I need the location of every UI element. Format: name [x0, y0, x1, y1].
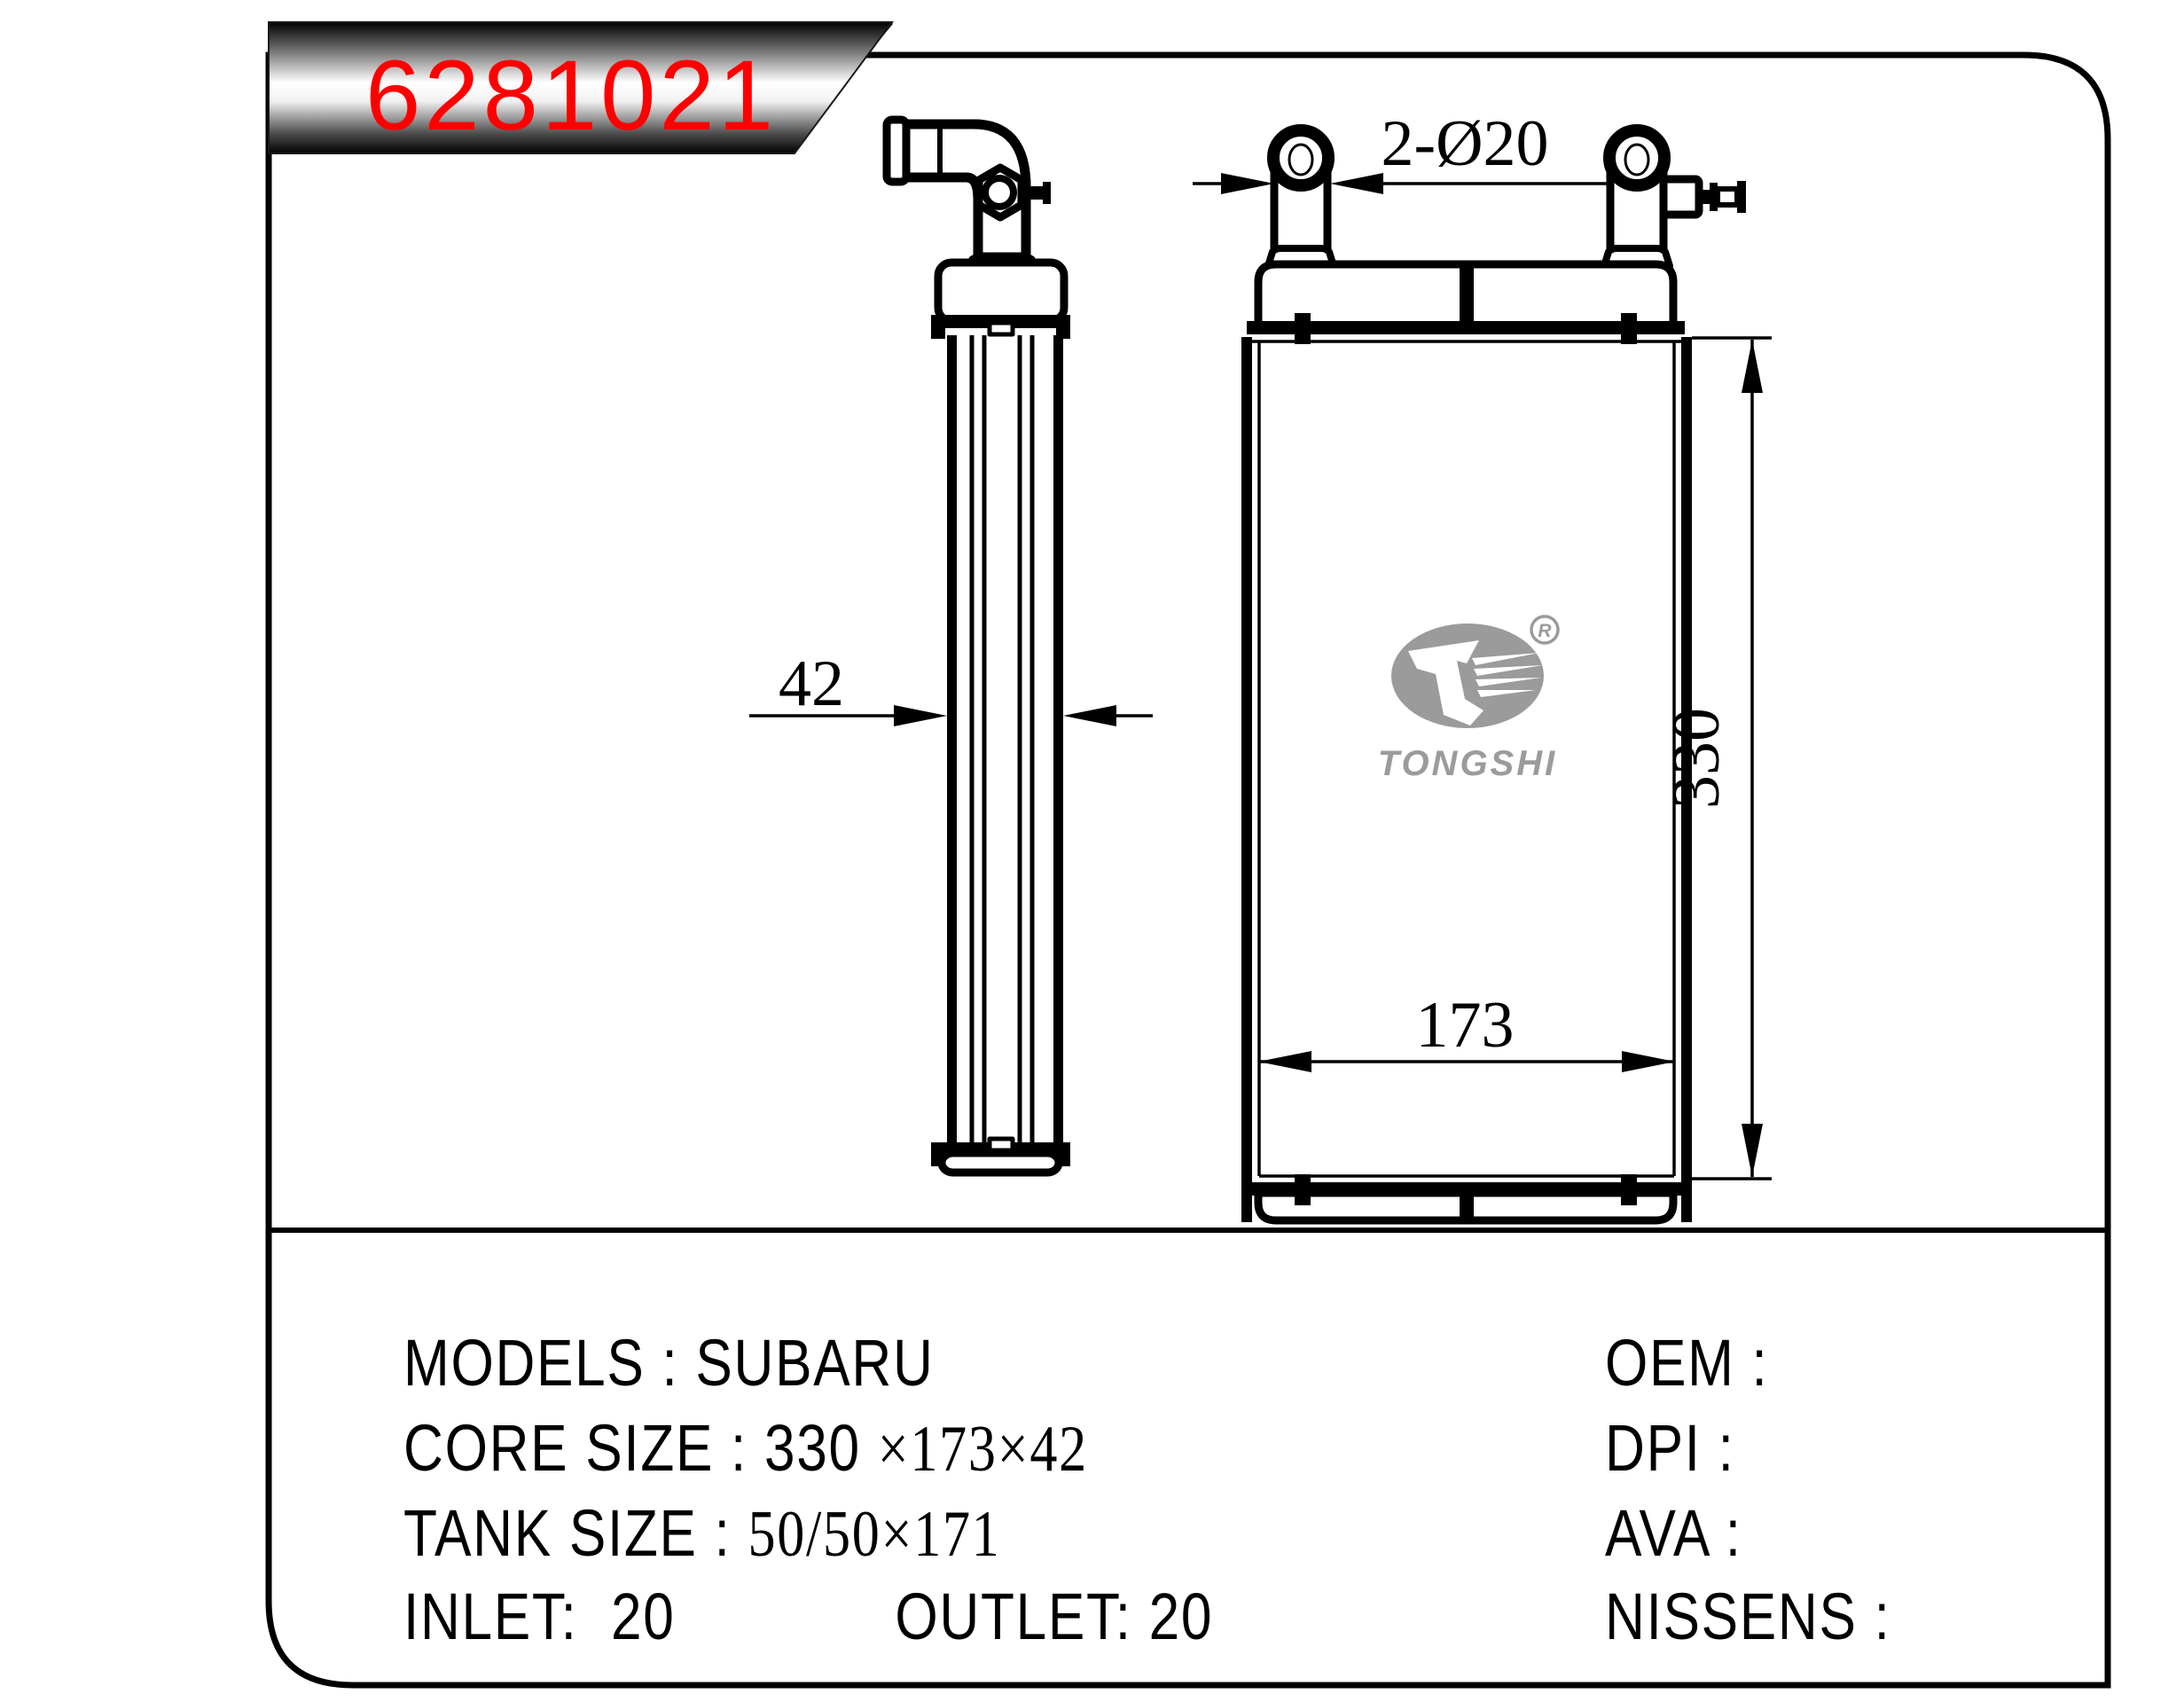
spec-row-models: MODELS : SUBARU	[403, 1327, 935, 1400]
arrowhead-330-top	[1742, 340, 1763, 393]
spec-row-dpi: DPI :	[1605, 1412, 1735, 1485]
hose-end-cap	[887, 120, 906, 182]
bleed-screw-cap	[1737, 181, 1746, 213]
tank-size-label: TANK SIZE :	[403, 1497, 732, 1570]
side-bottom-notch	[990, 1139, 1013, 1150]
front-side-plate-left	[1241, 337, 1252, 1222]
svg-text:OUTLET: 20: OUTLET: 20	[895, 1580, 1213, 1653]
drawing-sheet: 6281021	[0, 0, 2184, 1702]
inlet-pipe	[1268, 130, 1334, 266]
logo-wordmark: TONGSHI	[1378, 744, 1558, 783]
arrowhead-173-left	[1258, 1051, 1311, 1072]
models-value: SUBARU	[695, 1327, 934, 1400]
nut-bore	[985, 178, 1014, 207]
bleed-screw-body	[1718, 189, 1737, 205]
side-bottom-tab-right	[1056, 1154, 1070, 1166]
side-hex-nut	[979, 168, 1051, 217]
bleed-neck	[1699, 190, 1711, 204]
spec-row-ava: AVA :	[1605, 1497, 1742, 1570]
core-size-value-b: ×173×42	[878, 1412, 1088, 1485]
outlet-pipe	[1604, 130, 1746, 266]
bleed-block	[1663, 179, 1699, 215]
header-tab-bl-up	[1295, 1174, 1311, 1182]
header-tab-bl-down	[1295, 1196, 1311, 1205]
height-value: 330	[1659, 708, 1734, 809]
models-label: MODELS :	[403, 1327, 678, 1400]
tank-size-value: 50/50×171	[748, 1497, 1001, 1570]
width-value: 173	[1416, 989, 1515, 1062]
bleed-valve-icon	[1663, 179, 1746, 215]
registered-mark: R	[1538, 621, 1552, 641]
svg-text:INLET: 20: INLET: 20	[403, 1580, 676, 1653]
core-wall-right	[1053, 335, 1063, 1144]
arrowhead-330-bottom	[1742, 1124, 1763, 1177]
header-tab-tl-up	[1295, 313, 1311, 321]
spec-row-inlet-outlet: INLET: 20 OUTLET: 20	[403, 1580, 1213, 1653]
spec-right-column: OEM : DPI : AVA : NISSENS :	[1605, 1327, 1891, 1653]
spec-table: MODELS : SUBARU CORE SIZE : 330 ×173×42 …	[403, 1327, 1891, 1653]
side-top-tab-left	[931, 326, 945, 339]
side-core	[947, 335, 1063, 1144]
core-wall-left	[947, 335, 957, 1144]
side-bottom-tab-left	[931, 1154, 945, 1166]
core-size-value-a: 330	[764, 1412, 861, 1485]
spec-row-nissens: NISSENS :	[1605, 1580, 1891, 1653]
outlet-label: OUTLET:	[895, 1580, 1131, 1653]
arrowhead-ports-left	[1221, 173, 1274, 194]
inlet-bore	[1289, 145, 1312, 175]
svg-text:CORE SIZE : 330: CORE SIZE : 330 ×173×42	[403, 1412, 1088, 1485]
svg-text:TANK SIZE : 50/50×171: TANK SIZE : 50/50×171	[403, 1497, 1001, 1570]
bleed-cap	[1043, 182, 1051, 204]
front-view: R TONGSHI 2-Ø20 330 173	[1193, 107, 1772, 1222]
arrowhead-42-left	[894, 705, 947, 726]
elbow-inner	[906, 177, 978, 255]
inlet-value: 20	[611, 1580, 675, 1653]
tank-center-divider	[1460, 263, 1474, 328]
svg-text:MODELS : SUBARU: MODELS : SUBARU	[403, 1327, 935, 1400]
spec-row-tank-size: TANK SIZE : 50/50×171	[403, 1497, 1001, 1570]
front-top-header	[1247, 321, 1685, 334]
part-number: 6281021	[365, 40, 777, 151]
side-top-notch	[990, 323, 1013, 334]
arrowhead-42-right	[1063, 705, 1116, 726]
spec-row-core-size: CORE SIZE : 330 ×173×42	[403, 1412, 1088, 1485]
height-dimension: 330	[1659, 338, 1772, 1179]
inlet-label: INLET:	[403, 1580, 578, 1653]
technical-drawing-canvas: 6281021	[0, 0, 2184, 1702]
part-number-banner: 6281021	[269, 22, 892, 153]
header-tab-br-up	[1621, 1174, 1637, 1182]
side-view: 42	[749, 120, 1153, 1173]
header-tab-tr-up	[1621, 313, 1637, 321]
brand-logo: R TONGSHI	[1378, 616, 1558, 783]
bottom-tank-divider-tab	[1460, 1196, 1474, 1217]
front-bottom-header	[1247, 1182, 1685, 1196]
spec-row-oem: OEM :	[1605, 1327, 1769, 1400]
ports-dimension: 2-Ø20	[1193, 107, 1609, 194]
outlet-bore	[1625, 145, 1648, 175]
core-size-label: CORE SIZE :	[403, 1412, 748, 1485]
side-top-tank	[938, 263, 1064, 321]
outlet-value: 20	[1149, 1580, 1213, 1653]
side-bottom-tank	[942, 1153, 1059, 1173]
arrowhead-173-right	[1622, 1051, 1675, 1072]
bleed-stem	[1020, 186, 1043, 200]
header-tab-br-down	[1621, 1196, 1637, 1205]
width-dimension: 173	[1258, 989, 1675, 1072]
ports-value: 2-Ø20	[1381, 107, 1548, 180]
thickness-value: 42	[779, 647, 844, 720]
arrowhead-ports-right	[1330, 173, 1383, 194]
